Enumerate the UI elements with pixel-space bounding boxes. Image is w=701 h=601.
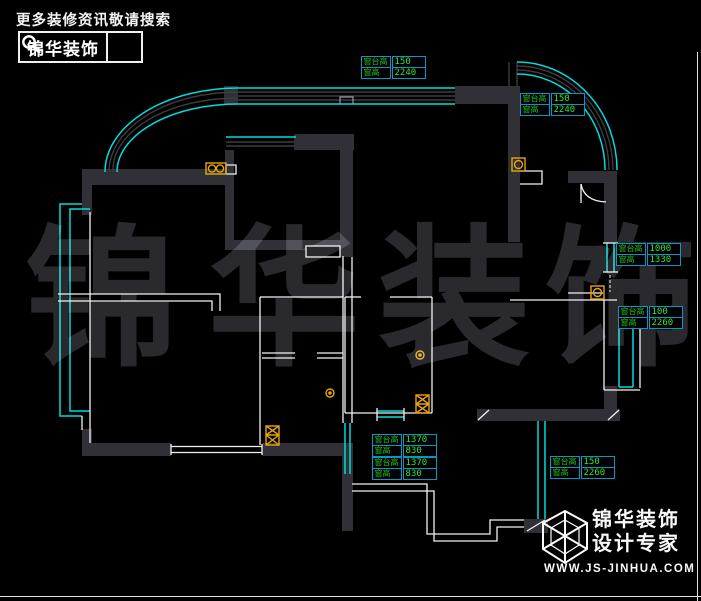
- footer-website: WWW.JS-JINHUA.COM: [544, 563, 695, 575]
- dim-value: 150: [392, 56, 426, 68]
- orange-symbols: [206, 158, 604, 445]
- curved-bay-window-top-left: [105, 88, 238, 172]
- window-dimension-table: 窗台高150 窗高2240: [520, 93, 585, 116]
- window-dimension-table: 窗台高1000 窗高1330: [616, 243, 681, 266]
- dim-label: 窗高: [520, 104, 550, 116]
- closet-outline: [520, 171, 542, 184]
- dim-label: 窗高: [618, 317, 648, 329]
- brand-search-box: 锦华装饰: [18, 31, 143, 63]
- dim-value: 2240: [392, 67, 426, 79]
- canvas-border-bottom: [0, 596, 701, 597]
- dim-label: 窗台高: [550, 456, 580, 468]
- dim-value: 1000: [647, 243, 681, 255]
- drain-circle-icon: [326, 389, 334, 397]
- canvas-border-right: [697, 52, 698, 601]
- dim-value: 1370: [403, 457, 437, 469]
- window-dimension-table: 窗台高150 窗高2260: [550, 456, 615, 479]
- footer-brand: 锦华装饰: [592, 508, 680, 532]
- dim-value: 1370: [403, 434, 437, 446]
- dim-label: 窗高: [372, 468, 402, 480]
- dim-label: 窗台高: [361, 56, 391, 68]
- dim-value: 100: [649, 306, 683, 318]
- dim-label: 窗高: [550, 467, 580, 479]
- dim-value: 2260: [649, 317, 683, 329]
- window-dimension-table: 窗台高150 窗高2240: [361, 56, 426, 79]
- dim-value: 830: [403, 468, 437, 480]
- window-dimension-table: 窗台高1370 窗高830 窗台高1370 窗高830: [372, 434, 437, 480]
- dim-value: 830: [403, 445, 437, 457]
- dim-label: 窗高: [372, 445, 402, 457]
- curved-bay-window-top-right: [517, 62, 617, 170]
- door-swing-icon: [581, 184, 606, 202]
- shaft-hatch-icon: [416, 395, 429, 413]
- footer-brand-block: 锦华装饰 设计专家: [592, 508, 680, 556]
- dim-value: 1330: [647, 254, 681, 266]
- drain-circle-icon: [416, 351, 424, 359]
- dim-value: 2240: [551, 104, 585, 116]
- wall-opening: [306, 246, 340, 257]
- cad-canvas: 锦 华 装 饰 更多装修资讯敬请搜索 锦华装饰 窗台高150 窗高2240 窗台…: [0, 0, 701, 601]
- dim-label: 窗高: [616, 254, 646, 266]
- search-icon: [106, 33, 141, 61]
- shaft-hatch-icon: [266, 426, 279, 445]
- dim-label: 窗台高: [618, 306, 648, 318]
- dim-label: 窗台高: [520, 93, 550, 105]
- dim-label: 窗台高: [372, 434, 402, 446]
- left-bay-window: [60, 204, 82, 416]
- walls: [82, 86, 620, 533]
- dim-label: 窗台高: [616, 243, 646, 255]
- header-tagline: 更多装修资讯敬请搜索: [16, 9, 171, 30]
- dim-value: 2260: [581, 467, 615, 479]
- dim-value: 150: [551, 93, 585, 105]
- dim-label: 窗高: [361, 67, 391, 79]
- window-dimension-table: 窗台高100 窗高2260: [618, 306, 683, 329]
- dim-label: 窗台高: [372, 457, 402, 469]
- dim-value: 150: [581, 456, 615, 468]
- footer-slogan: 设计专家: [592, 532, 680, 556]
